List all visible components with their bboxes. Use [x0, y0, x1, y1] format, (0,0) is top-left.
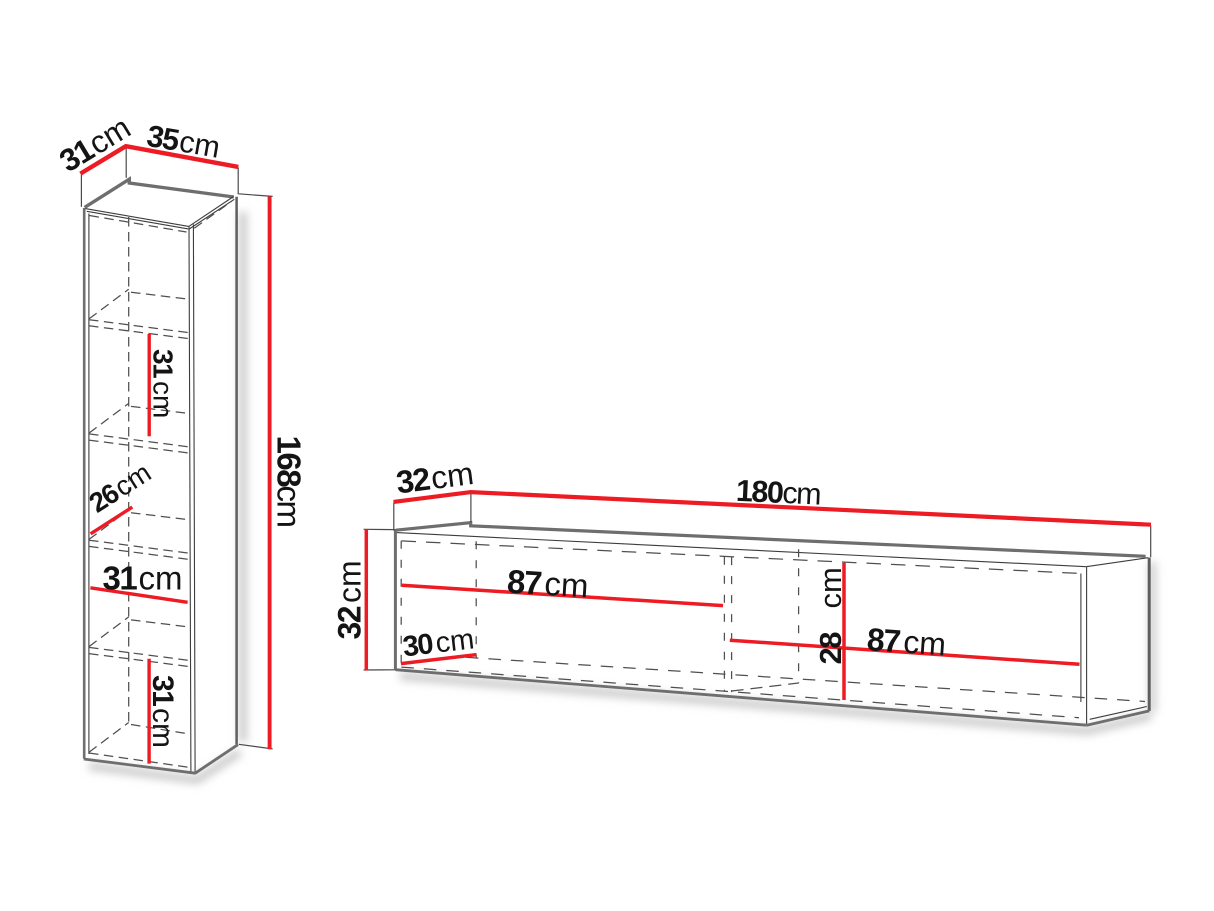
svg-text:31: 31 — [103, 560, 138, 597]
svg-text:cm: cm — [139, 560, 183, 597]
svg-text:31: 31 — [148, 349, 179, 378]
svg-text:cm: cm — [331, 560, 367, 603]
svg-text:30: 30 — [401, 628, 434, 663]
svg-text:cm: cm — [782, 476, 821, 512]
svg-text:cm: cm — [434, 623, 476, 659]
svg-text:31: 31 — [146, 675, 179, 706]
svg-text:cm: cm — [544, 565, 590, 605]
svg-text:cm: cm — [271, 486, 308, 527]
svg-text:180: 180 — [735, 474, 783, 510]
svg-text:cm: cm — [148, 381, 179, 418]
svg-text:28: 28 — [813, 632, 848, 665]
svg-text:32: 32 — [331, 606, 367, 639]
svg-text:87: 87 — [506, 563, 542, 602]
svg-text:168: 168 — [271, 436, 308, 488]
svg-text:cm: cm — [902, 624, 947, 663]
svg-text:cm: cm — [146, 708, 179, 748]
svg-text:87: 87 — [866, 621, 902, 659]
svg-text:cm: cm — [429, 455, 476, 496]
svg-text:cm: cm — [813, 567, 848, 608]
svg-text:32: 32 — [394, 461, 432, 501]
svg-text:cm: cm — [177, 124, 223, 164]
